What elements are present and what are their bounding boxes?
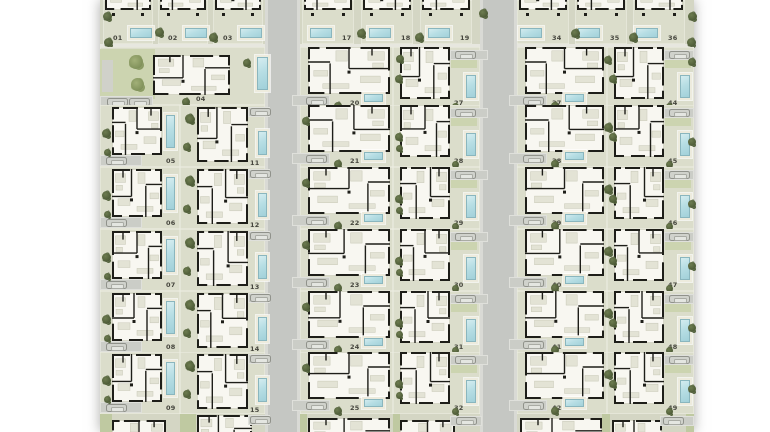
house-plan bbox=[525, 47, 604, 94]
pool bbox=[128, 26, 154, 40]
pool bbox=[464, 193, 478, 220]
house-plan bbox=[400, 420, 455, 432]
house-plan bbox=[308, 167, 390, 214]
pergola-post bbox=[251, 13, 254, 16]
tree-icon bbox=[396, 145, 403, 152]
house-plan bbox=[308, 47, 390, 94]
house-plan bbox=[612, 420, 662, 432]
tree-icon bbox=[102, 376, 111, 385]
grass-patch bbox=[451, 60, 477, 68]
tree-icon bbox=[395, 133, 403, 141]
pool bbox=[164, 360, 177, 397]
tree-icon bbox=[302, 117, 310, 125]
house-plan bbox=[197, 354, 248, 409]
house-plan bbox=[614, 167, 664, 219]
car-icon bbox=[455, 356, 476, 364]
car-icon bbox=[106, 404, 127, 412]
grass-patch bbox=[665, 180, 691, 188]
car-icon bbox=[523, 279, 544, 287]
tree-icon bbox=[666, 408, 673, 415]
tree-icon bbox=[395, 380, 403, 388]
tree-icon bbox=[183, 390, 191, 398]
pergola-post bbox=[615, 13, 618, 16]
pergola-post bbox=[673, 13, 676, 16]
house-plan bbox=[525, 167, 604, 214]
pergola-post bbox=[112, 13, 115, 16]
car-icon bbox=[455, 51, 476, 59]
pergola-post bbox=[222, 13, 225, 16]
plot-label: 17 bbox=[342, 35, 358, 42]
tree-icon bbox=[551, 407, 559, 415]
car-icon bbox=[669, 356, 690, 364]
car-icon bbox=[306, 341, 327, 349]
tree-icon bbox=[604, 247, 613, 256]
pool bbox=[164, 299, 177, 336]
house-plan bbox=[112, 231, 162, 279]
car-icon bbox=[306, 279, 327, 287]
tree-icon bbox=[395, 75, 403, 83]
pool bbox=[256, 376, 269, 404]
house-plan bbox=[308, 418, 390, 432]
house-plan bbox=[525, 291, 604, 338]
tree-icon bbox=[415, 33, 424, 42]
plot-label: 25 bbox=[350, 405, 366, 412]
pergola-post bbox=[196, 13, 199, 16]
house-plan bbox=[614, 352, 664, 404]
house-plan bbox=[614, 229, 664, 281]
tree-icon bbox=[688, 385, 696, 393]
tree-icon bbox=[186, 115, 195, 124]
tree-icon bbox=[604, 370, 613, 379]
pergola-post bbox=[642, 13, 645, 16]
house-plan bbox=[112, 354, 162, 402]
house-plan bbox=[308, 291, 390, 338]
pool bbox=[256, 315, 269, 343]
tree-icon bbox=[104, 335, 111, 342]
tree-icon bbox=[395, 257, 403, 265]
tree-icon bbox=[102, 191, 111, 200]
plot-label: 13 bbox=[250, 284, 266, 291]
tree-icon bbox=[688, 58, 696, 66]
pool bbox=[256, 253, 269, 281]
house-plan bbox=[197, 293, 248, 348]
car-icon bbox=[250, 355, 271, 363]
car-icon bbox=[106, 281, 127, 289]
plot-label: 36 bbox=[668, 35, 684, 42]
tree-icon bbox=[571, 29, 580, 38]
tree-icon bbox=[302, 364, 310, 372]
house-plan bbox=[525, 229, 604, 276]
car-icon bbox=[250, 108, 271, 116]
house-plan bbox=[400, 352, 450, 404]
grass-patch bbox=[665, 365, 691, 373]
car-icon bbox=[455, 109, 476, 117]
tree-icon bbox=[396, 207, 403, 214]
bush-icon bbox=[131, 78, 144, 91]
plot-label: 01 bbox=[113, 35, 129, 42]
grass-patch bbox=[451, 180, 477, 188]
tree-icon bbox=[609, 75, 617, 83]
tree-icon bbox=[604, 123, 613, 132]
house-plan bbox=[577, 0, 625, 10]
car-icon bbox=[306, 97, 327, 105]
car-icon bbox=[523, 402, 544, 410]
tree-icon bbox=[155, 28, 164, 37]
pergola-post bbox=[311, 13, 314, 16]
car-icon bbox=[455, 233, 476, 241]
car-icon bbox=[669, 233, 690, 241]
pool bbox=[164, 113, 177, 150]
car-icon bbox=[523, 155, 544, 163]
tree-icon bbox=[103, 12, 112, 21]
tree-icon bbox=[102, 253, 111, 262]
pool bbox=[518, 26, 544, 40]
house-plan bbox=[614, 105, 664, 157]
car-icon bbox=[523, 341, 544, 349]
house-plan bbox=[160, 0, 206, 10]
plot-label: 24 bbox=[350, 344, 366, 351]
pergola-post bbox=[460, 13, 463, 16]
grass-patch bbox=[451, 365, 477, 373]
tree-icon bbox=[395, 319, 403, 327]
tree-icon bbox=[334, 407, 342, 415]
tree-icon bbox=[186, 177, 195, 186]
tree-icon bbox=[688, 324, 696, 332]
car-icon bbox=[106, 343, 127, 351]
site-plan-canvas: 0102031718193435360405060708091112131415… bbox=[0, 0, 770, 432]
house-plan bbox=[112, 420, 166, 432]
tree-icon bbox=[604, 309, 613, 318]
house-plan bbox=[197, 107, 248, 162]
car-icon bbox=[523, 97, 544, 105]
house-plan bbox=[400, 291, 450, 343]
tree-icon bbox=[609, 257, 617, 265]
grass-patch bbox=[665, 118, 691, 126]
pool bbox=[308, 26, 334, 40]
house-plan bbox=[197, 169, 248, 224]
pool bbox=[256, 129, 269, 157]
car-icon bbox=[456, 417, 477, 425]
tree-icon bbox=[209, 33, 218, 42]
tree-icon bbox=[687, 38, 696, 47]
pergola-post bbox=[167, 13, 170, 16]
plot-label: 23 bbox=[350, 282, 366, 289]
house-plan bbox=[197, 231, 248, 286]
tree-icon bbox=[609, 195, 617, 203]
house-plan bbox=[112, 169, 162, 217]
house-plan bbox=[400, 229, 450, 281]
grass-patch bbox=[665, 242, 691, 250]
car-icon bbox=[106, 219, 127, 227]
plot-label: 12 bbox=[250, 222, 266, 229]
plot-label: 35 bbox=[610, 35, 626, 42]
house-plan bbox=[308, 352, 390, 399]
pool bbox=[183, 26, 209, 40]
house-plan bbox=[308, 105, 390, 152]
tree-icon bbox=[302, 303, 310, 311]
grass-patch bbox=[451, 118, 477, 126]
tree-icon bbox=[183, 205, 191, 213]
pool bbox=[678, 73, 692, 100]
tree-icon bbox=[396, 269, 403, 276]
tree-icon bbox=[302, 241, 310, 249]
tree-icon bbox=[183, 329, 191, 337]
tree-icon bbox=[104, 211, 111, 218]
tree-icon bbox=[609, 380, 617, 388]
plot-label: 03 bbox=[223, 35, 239, 42]
house-plan bbox=[525, 105, 604, 152]
tree-icon bbox=[357, 29, 366, 38]
plot-label: 11 bbox=[250, 160, 266, 167]
pad bbox=[102, 60, 113, 92]
tree-icon bbox=[479, 9, 488, 18]
pool bbox=[255, 55, 270, 92]
house-plan bbox=[400, 105, 450, 157]
tree-icon bbox=[102, 129, 111, 138]
car-icon bbox=[250, 170, 271, 178]
tree-icon bbox=[629, 33, 638, 42]
pool bbox=[464, 73, 478, 100]
car-icon bbox=[669, 51, 690, 59]
car-icon bbox=[669, 295, 690, 303]
house-plan bbox=[614, 291, 664, 343]
pergola-post bbox=[557, 13, 560, 16]
grass-patch bbox=[451, 304, 477, 312]
tree-icon bbox=[396, 392, 403, 399]
house-plan bbox=[635, 0, 683, 10]
house-plan bbox=[215, 0, 261, 10]
tree-icon bbox=[609, 133, 617, 141]
tree-icon bbox=[186, 301, 195, 310]
pergola-post bbox=[342, 13, 345, 16]
pergola-post bbox=[401, 13, 404, 16]
pergola-post bbox=[141, 13, 144, 16]
tree-icon bbox=[395, 195, 403, 203]
car-icon bbox=[669, 109, 690, 117]
bush-icon bbox=[129, 55, 143, 69]
pool bbox=[238, 26, 264, 40]
tree-icon bbox=[186, 239, 195, 248]
tree-icon bbox=[104, 396, 111, 403]
house-plan bbox=[308, 229, 390, 276]
plot-label: 19 bbox=[460, 35, 476, 42]
tree-icon bbox=[604, 56, 612, 64]
pool bbox=[464, 378, 478, 405]
car-icon bbox=[669, 171, 690, 179]
tree-icon bbox=[609, 319, 617, 327]
pergola-post bbox=[429, 13, 432, 16]
house-plan bbox=[614, 47, 664, 99]
pool bbox=[464, 255, 478, 282]
tree-icon bbox=[302, 179, 310, 187]
pool bbox=[464, 131, 478, 158]
grass-patch bbox=[665, 304, 691, 312]
tree-icon bbox=[688, 200, 696, 208]
plot-label: 22 bbox=[350, 220, 366, 227]
plot-label: 21 bbox=[350, 158, 366, 165]
car-icon bbox=[306, 402, 327, 410]
tree-icon bbox=[104, 38, 113, 47]
car-icon bbox=[455, 171, 476, 179]
tree-icon bbox=[452, 408, 459, 415]
car-icon bbox=[306, 217, 327, 225]
pool bbox=[367, 26, 393, 40]
house-plan bbox=[519, 0, 567, 10]
house-plan bbox=[153, 55, 230, 95]
car-icon bbox=[523, 217, 544, 225]
pergola-post bbox=[370, 13, 373, 16]
house-plan bbox=[520, 418, 602, 432]
house-plan bbox=[525, 352, 604, 399]
house-plan bbox=[112, 293, 162, 341]
tree-icon bbox=[688, 12, 697, 21]
tree-icon bbox=[186, 362, 195, 371]
house-plan bbox=[400, 47, 450, 99]
tree-icon bbox=[102, 315, 111, 324]
pool bbox=[256, 191, 269, 219]
car-icon bbox=[250, 294, 271, 302]
tree-icon bbox=[183, 143, 191, 151]
pool bbox=[464, 317, 478, 344]
pool bbox=[164, 175, 177, 212]
car-icon bbox=[663, 417, 684, 425]
tree-icon bbox=[183, 267, 191, 275]
house-plan bbox=[422, 0, 470, 10]
grass-patch bbox=[451, 242, 477, 250]
house-plan bbox=[400, 167, 450, 219]
plot-label: 04 bbox=[196, 96, 212, 103]
pergola-post bbox=[526, 13, 529, 16]
car-icon bbox=[455, 295, 476, 303]
tree-icon bbox=[688, 262, 696, 270]
tree-icon bbox=[104, 149, 111, 156]
car-icon bbox=[250, 232, 271, 240]
pool bbox=[426, 26, 452, 40]
pool bbox=[164, 237, 177, 274]
house-plan bbox=[197, 415, 252, 432]
plot-label: 02 bbox=[168, 35, 184, 42]
tree-icon bbox=[104, 273, 111, 280]
house-plan bbox=[105, 0, 151, 10]
house-plan bbox=[112, 107, 162, 155]
tree-icon bbox=[604, 185, 613, 194]
car-icon bbox=[106, 157, 127, 165]
tree-icon bbox=[243, 59, 251, 67]
car-icon bbox=[306, 155, 327, 163]
plot-label: 15 bbox=[250, 407, 266, 414]
house-plan bbox=[363, 0, 411, 10]
car-icon bbox=[250, 416, 271, 424]
pergola-post bbox=[584, 13, 587, 16]
tree-icon bbox=[396, 55, 404, 63]
house-plan bbox=[304, 0, 352, 10]
tree-icon bbox=[396, 331, 403, 338]
plot-label: 34 bbox=[552, 35, 568, 42]
tree-icon bbox=[688, 138, 696, 146]
